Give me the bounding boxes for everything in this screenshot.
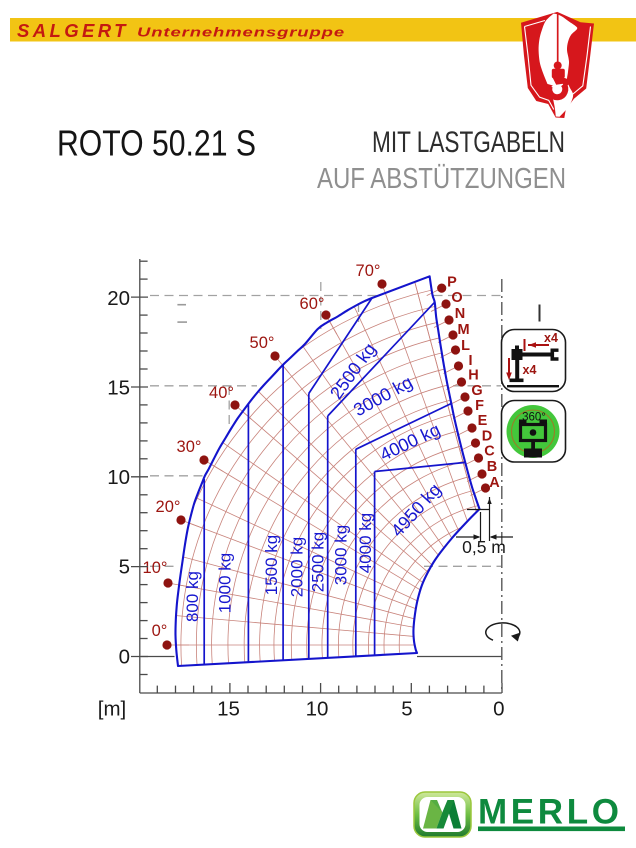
svg-text:x4: x4 <box>523 363 537 377</box>
svg-text:N: N <box>455 306 465 322</box>
svg-text:0°: 0° <box>152 622 168 640</box>
svg-text:x4: x4 <box>544 331 558 345</box>
svg-text:20°: 20° <box>156 498 181 516</box>
svg-text:M: M <box>457 322 469 338</box>
svg-text:50°: 50° <box>250 334 275 352</box>
svg-text:0: 0 <box>119 646 130 669</box>
svg-text:3000 kg: 3000 kg <box>332 525 351 586</box>
svg-text:H: H <box>468 368 478 384</box>
svg-text:10: 10 <box>306 698 329 721</box>
svg-text:5: 5 <box>401 698 412 721</box>
svg-text:1500 kg: 1500 kg <box>262 535 281 596</box>
svg-text:2000 kg: 2000 kg <box>288 537 307 598</box>
svg-text:5: 5 <box>119 556 130 579</box>
svg-text:E: E <box>478 413 488 429</box>
svg-text:SALGERT: SALGERT <box>17 20 129 41</box>
svg-text:30°: 30° <box>177 438 202 456</box>
svg-text:P: P <box>447 275 457 291</box>
svg-text:60°: 60° <box>300 295 325 313</box>
svg-text:L: L <box>461 338 470 354</box>
svg-text:G: G <box>471 383 482 399</box>
svg-text:Unternehmensgruppe: Unternehmensgruppe <box>137 26 345 40</box>
svg-text:20: 20 <box>107 287 130 310</box>
svg-text:1000 kg: 1000 kg <box>216 553 235 614</box>
svg-text:A: A <box>489 475 500 491</box>
svg-text:ROTO 50.21 S: ROTO 50.21 S <box>57 123 256 164</box>
svg-text:4000 kg: 4000 kg <box>356 513 375 574</box>
svg-text:D: D <box>482 429 492 445</box>
svg-text:10: 10 <box>107 466 130 489</box>
svg-text:F: F <box>475 398 484 414</box>
svg-text:MERLO: MERLO <box>478 793 619 832</box>
svg-text:C: C <box>484 444 495 460</box>
svg-text:B: B <box>487 459 497 475</box>
svg-text:0: 0 <box>493 698 504 721</box>
svg-text:0,5 m: 0,5 m <box>462 537 506 557</box>
svg-text:10°: 10° <box>143 559 168 577</box>
svg-text:[m]: [m] <box>98 698 126 721</box>
svg-text:800 kg: 800 kg <box>183 571 202 622</box>
svg-text:MIT LASTGABELN: MIT LASTGABELN <box>372 126 565 159</box>
svg-text:15: 15 <box>107 377 130 400</box>
svg-text:70°: 70° <box>356 262 381 280</box>
svg-text:2500 kg: 2500 kg <box>309 532 328 593</box>
svg-text:40°: 40° <box>209 384 234 402</box>
svg-text:O: O <box>451 290 462 306</box>
svg-text:15: 15 <box>217 698 240 721</box>
svg-text:AUF ABSTÜTZUNGEN: AUF ABSTÜTZUNGEN <box>317 163 566 195</box>
